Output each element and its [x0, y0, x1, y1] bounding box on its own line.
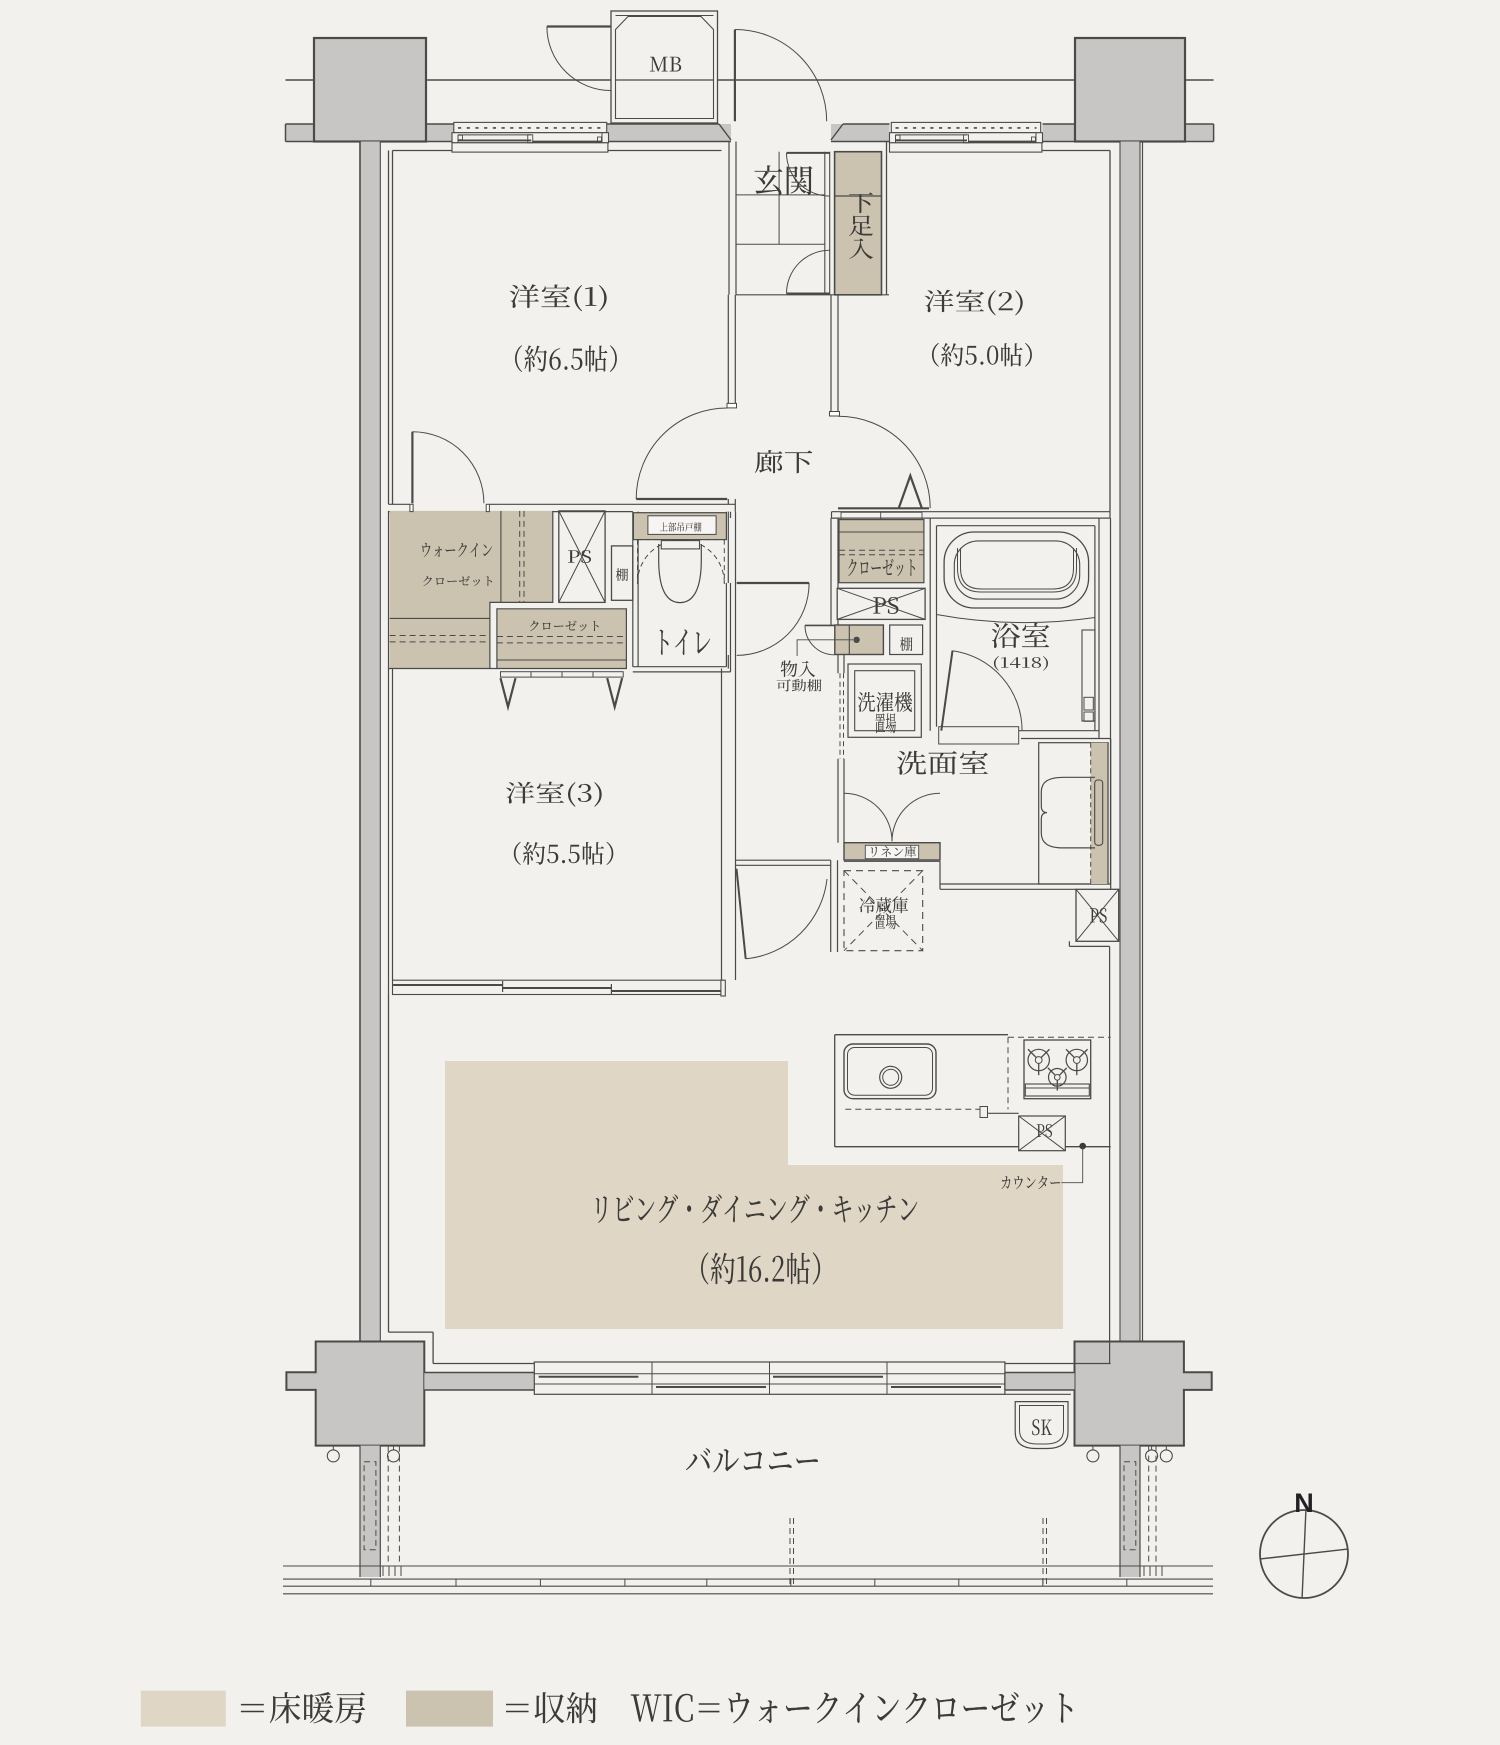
svg-text:N: N: [1294, 1488, 1314, 1518]
